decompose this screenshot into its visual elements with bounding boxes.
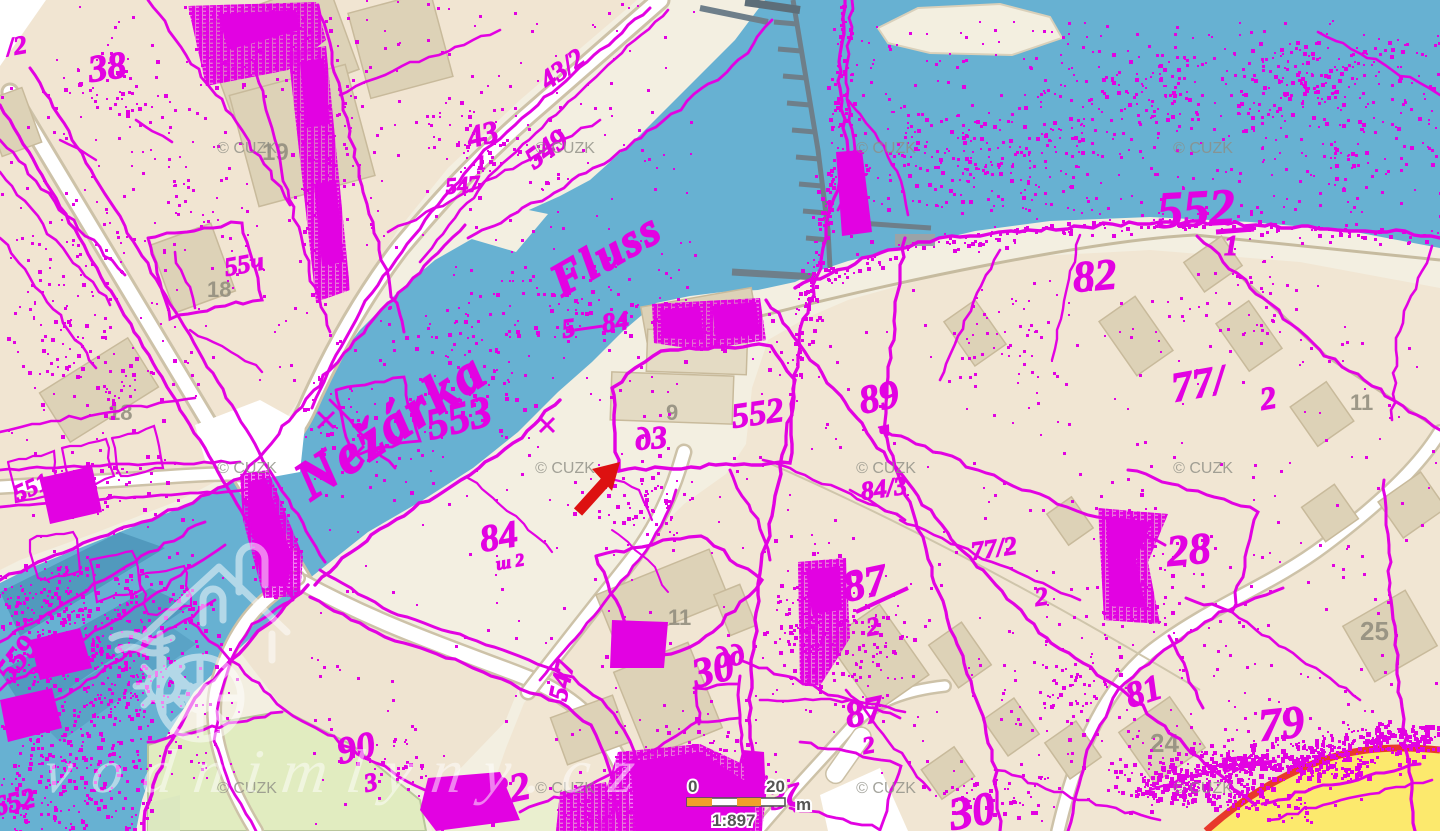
svg-text:© CUZK: © CUZK (535, 140, 595, 157)
svg-text:552: 552 (729, 390, 786, 436)
svg-text:20: 20 (766, 777, 785, 796)
svg-text:24: 24 (1150, 728, 1179, 758)
svg-text:© CUZK: © CUZK (1173, 460, 1233, 477)
svg-text:82: 82 (1071, 249, 1119, 302)
svg-text:vodnimlyny.cz: vodnimlyny.cz (40, 737, 659, 806)
svg-text:1:897: 1:897 (712, 811, 755, 830)
svg-text:дд: дд (712, 638, 746, 675)
svg-text:11: 11 (1350, 390, 1373, 415)
svg-text:547: 547 (444, 171, 482, 199)
svg-text:25: 25 (1360, 616, 1389, 646)
svg-text:© CUZK: © CUZK (856, 780, 916, 797)
svg-text:© CUZK: © CUZK (1173, 140, 1233, 157)
svg-text:11: 11 (668, 605, 691, 630)
svg-text:© CUZK: © CUZK (217, 140, 277, 157)
svg-text:© CUZK: © CUZK (535, 460, 595, 477)
svg-text:38: 38 (84, 44, 128, 91)
svg-text:© CUZK: © CUZK (217, 460, 277, 477)
svg-text:0: 0 (688, 777, 697, 796)
svg-text:© CUZK: © CUZK (856, 140, 916, 157)
svg-text:д3: д3 (633, 418, 668, 457)
svg-text:© CUZK: © CUZK (1173, 780, 1233, 797)
svg-text:9: 9 (666, 400, 678, 425)
svg-text:1: 1 (1224, 231, 1238, 262)
svg-text:© CUZK: © CUZK (856, 460, 916, 477)
svg-text:m: m (796, 795, 811, 814)
svg-text:28: 28 (1164, 523, 1213, 576)
